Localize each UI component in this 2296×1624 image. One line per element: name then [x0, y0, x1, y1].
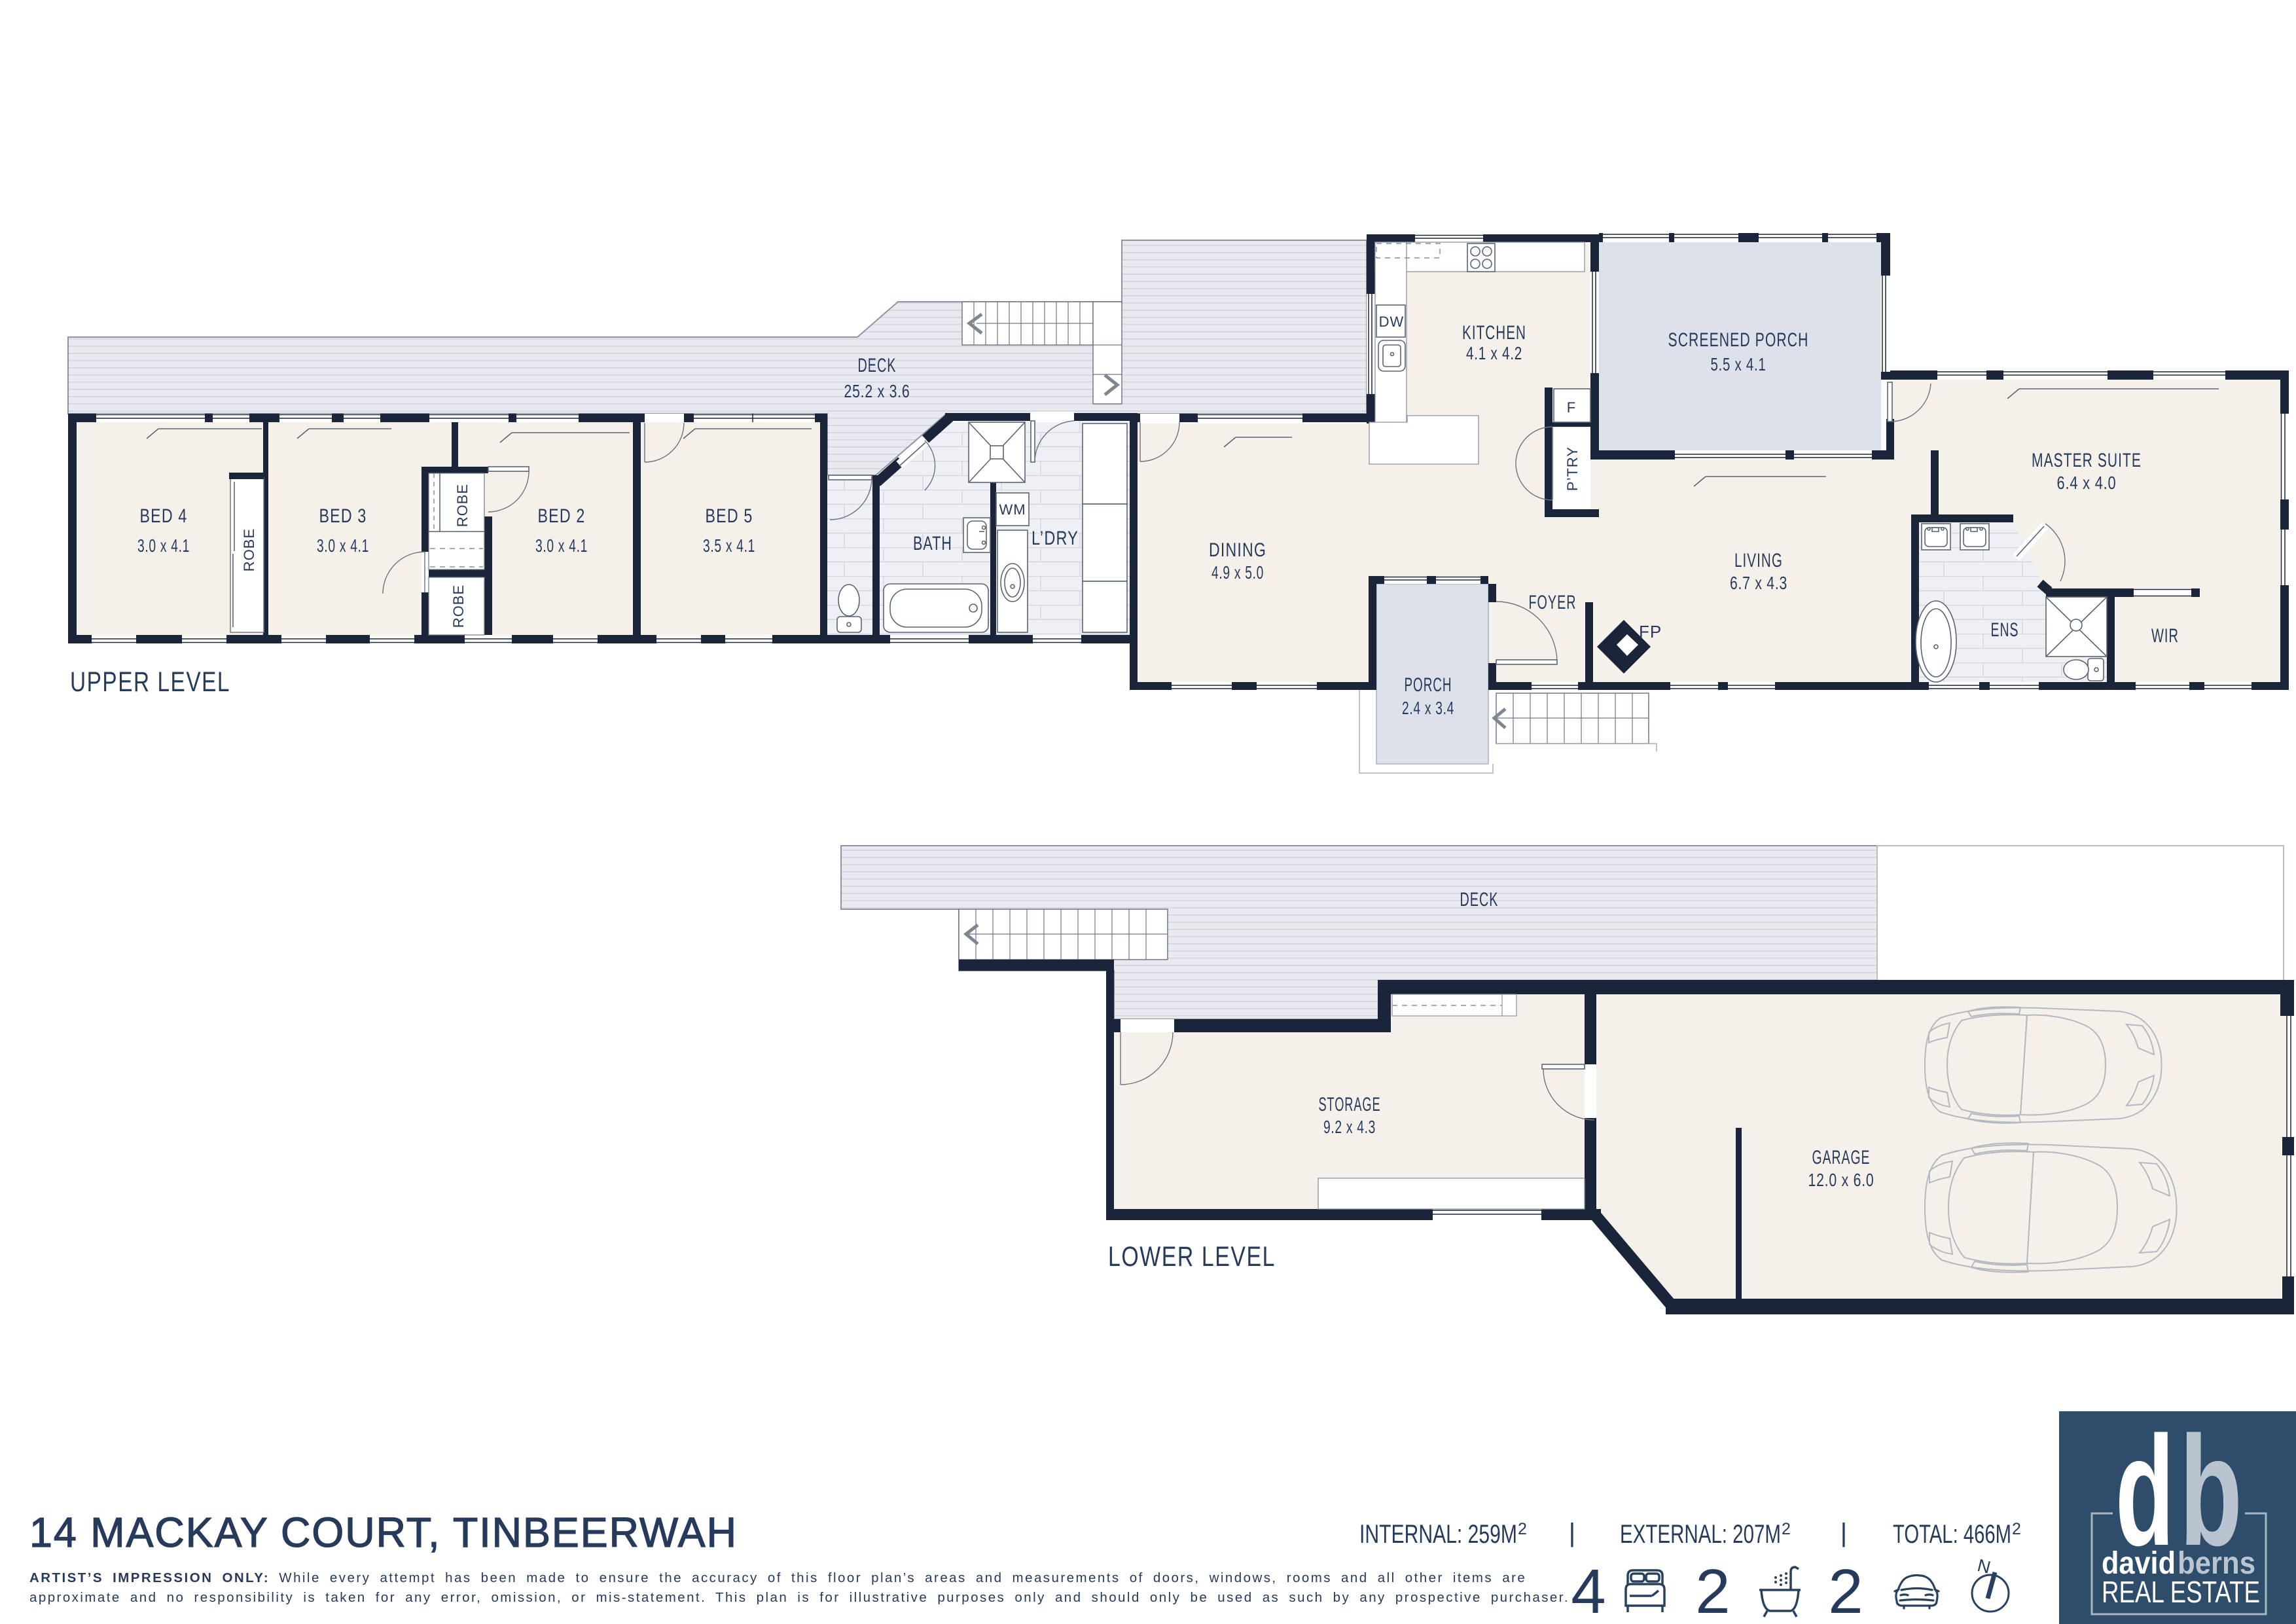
svg-text:6.4 x 4.0: 6.4 x 4.0 — [2057, 473, 2117, 493]
svg-text:MASTER SUITE: MASTER SUITE — [2032, 450, 2142, 471]
svg-text:|: | — [1569, 1519, 1575, 1547]
svg-text:LIVING: LIVING — [1734, 550, 1783, 571]
svg-text:DECK: DECK — [858, 355, 897, 376]
svg-text:LOWER LEVEL: LOWER LEVEL — [1108, 1241, 1276, 1272]
svg-text:DW: DW — [1379, 314, 1405, 330]
svg-text:6.7 x 4.3: 6.7 x 4.3 — [1730, 573, 1787, 593]
svg-text:4.9 x 5.0: 4.9 x 5.0 — [1211, 562, 1264, 583]
svg-text:STORAGE: STORAGE — [1319, 1094, 1381, 1115]
svg-text:DINING: DINING — [1209, 539, 1266, 561]
svg-text:ROBE: ROBE — [241, 528, 257, 571]
svg-text:KITCHEN: KITCHEN — [1462, 322, 1526, 344]
svg-text:WIR: WIR — [2151, 625, 2179, 647]
svg-text:2.4 x 3.4: 2.4 x 3.4 — [1402, 698, 1454, 718]
svg-text:SCREENED PORCH: SCREENED PORCH — [1668, 329, 1809, 351]
svg-text:BED 4: BED 4 — [140, 505, 188, 527]
svg-text:2: 2 — [2012, 1520, 2021, 1538]
svg-text:3.0 x 4.1: 3.0 x 4.1 — [535, 535, 588, 556]
svg-text:FP: FP — [1639, 622, 1662, 641]
svg-text:ROBE: ROBE — [450, 585, 467, 628]
svg-text:2: 2 — [1828, 1557, 1863, 1624]
svg-text:F: F — [1567, 399, 1576, 416]
svg-text:ARTIST’S IMPRESSION ONLY: Whil: ARTIST’S IMPRESSION ONLY: While every at… — [29, 1570, 1526, 1585]
svg-text:TOTAL: 466M: TOTAL: 466M — [1893, 1520, 2011, 1549]
svg-text:approximate and no responsibil: approximate and no responsibility is tak… — [29, 1590, 1570, 1605]
svg-text:P’TRY: P’TRY — [1564, 446, 1581, 491]
svg-text:BATH: BATH — [913, 533, 952, 554]
svg-text:9.2 x 4.3: 9.2 x 4.3 — [1323, 1117, 1376, 1137]
svg-text:ENS: ENS — [1991, 619, 2019, 641]
svg-text:4.1 x 4.2: 4.1 x 4.2 — [1466, 343, 1522, 363]
svg-text:EXTERNAL: 207M: EXTERNAL: 207M — [1620, 1520, 1781, 1549]
svg-text:PORCH: PORCH — [1405, 674, 1452, 696]
svg-text:3.0 x 4.1: 3.0 x 4.1 — [317, 535, 369, 556]
svg-text:|: | — [1840, 1519, 1847, 1547]
svg-text:ROBE: ROBE — [454, 484, 471, 527]
svg-text:4: 4 — [1571, 1557, 1605, 1624]
svg-text:3.0 x 4.1: 3.0 x 4.1 — [137, 535, 190, 556]
svg-text:BED 3: BED 3 — [319, 505, 367, 527]
svg-text:14 MACKAY COURT, TINBEERWAH: 14 MACKAY COURT, TINBEERWAH — [29, 1509, 738, 1556]
svg-text:BED 2: BED 2 — [538, 505, 586, 527]
svg-text:REAL ESTATE: REAL ESTATE — [2102, 1575, 2260, 1609]
svg-text:25.2 x 3.6: 25.2 x 3.6 — [844, 381, 910, 401]
svg-text:GARAGE: GARAGE — [1812, 1147, 1871, 1168]
svg-text:INTERNAL: 259M: INTERNAL: 259M — [1359, 1520, 1517, 1549]
svg-text:UPPER LEVEL: UPPER LEVEL — [70, 666, 230, 698]
svg-text:3.5 x 4.1: 3.5 x 4.1 — [703, 535, 755, 556]
svg-text:BED 5: BED 5 — [706, 505, 753, 527]
svg-text:WM: WM — [999, 501, 1026, 518]
svg-text:FOYER: FOYER — [1529, 592, 1577, 613]
svg-text:2: 2 — [1695, 1557, 1730, 1624]
svg-text:2: 2 — [1782, 1520, 1791, 1538]
svg-text:12.0 x 6.0: 12.0 x 6.0 — [1808, 1170, 1874, 1190]
svg-text:2: 2 — [1518, 1520, 1527, 1538]
svg-text:5.5 x 4.1: 5.5 x 4.1 — [1711, 354, 1767, 374]
svg-text:DECK: DECK — [1460, 889, 1499, 911]
svg-text:L’DRY: L’DRY — [1031, 528, 1079, 549]
